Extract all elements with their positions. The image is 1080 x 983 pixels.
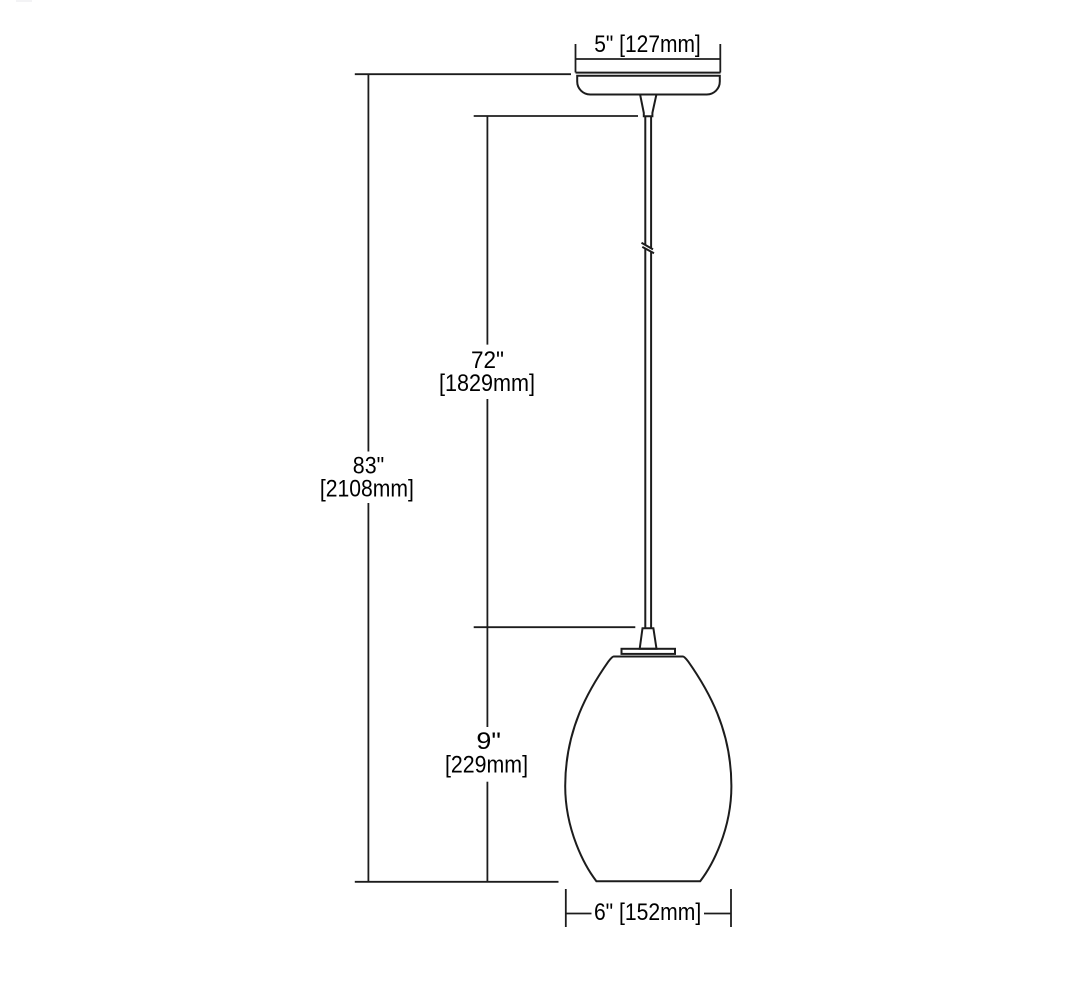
svg-text:[2108mm]: [2108mm] <box>320 475 414 502</box>
svg-text:[1829mm]: [1829mm] <box>439 370 535 397</box>
svg-text:[229mm]: [229mm] <box>445 752 528 779</box>
svg-text:6" [152mm]: 6" [152mm] <box>594 899 701 926</box>
svg-text:5" [127mm]: 5" [127mm] <box>594 31 701 58</box>
